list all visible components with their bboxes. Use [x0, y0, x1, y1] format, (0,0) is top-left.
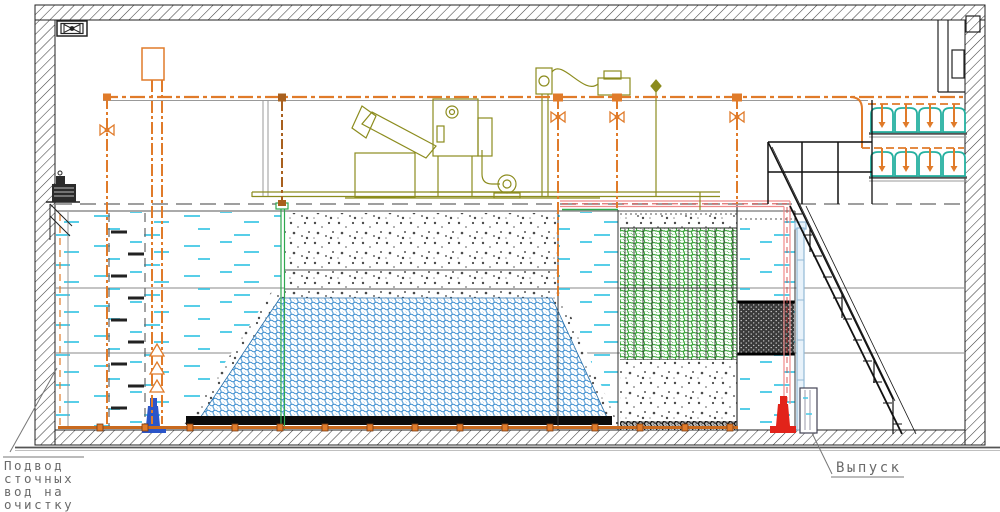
hopper [355, 153, 415, 197]
right-wall [965, 20, 985, 445]
biofilter-column [620, 214, 737, 430]
left-wall [35, 20, 55, 445]
gravel-lower-band [620, 360, 737, 421]
motor-unit [598, 78, 630, 95]
screw-conveyor-arm [362, 112, 436, 158]
gravel-top-band [284, 213, 558, 293]
green-media-bed [620, 228, 737, 360]
olive-equipment [252, 68, 720, 210]
floor-slab [55, 430, 965, 445]
air-receiver-box [142, 48, 164, 80]
pump-icon [498, 175, 516, 193]
inlet-label-line4: очистку [4, 497, 74, 512]
plant-section-drawing: Подвод сточных вод на очистку Выпуск [0, 0, 1000, 512]
wall-fan-unit [57, 21, 87, 36]
annotations: Подвод сточных вод на очистку Выпуск [4, 458, 902, 512]
aeration-bells [869, 104, 967, 181]
outlet-channel-box [800, 388, 817, 433]
drawing-canvas: Подвод сточных вод на очистку Выпуск [0, 0, 1000, 512]
outlet-label: Выпуск [836, 460, 902, 476]
dark-media-block [739, 302, 794, 354]
ground-line [15, 448, 1000, 451]
ceiling-slab [35, 5, 985, 20]
